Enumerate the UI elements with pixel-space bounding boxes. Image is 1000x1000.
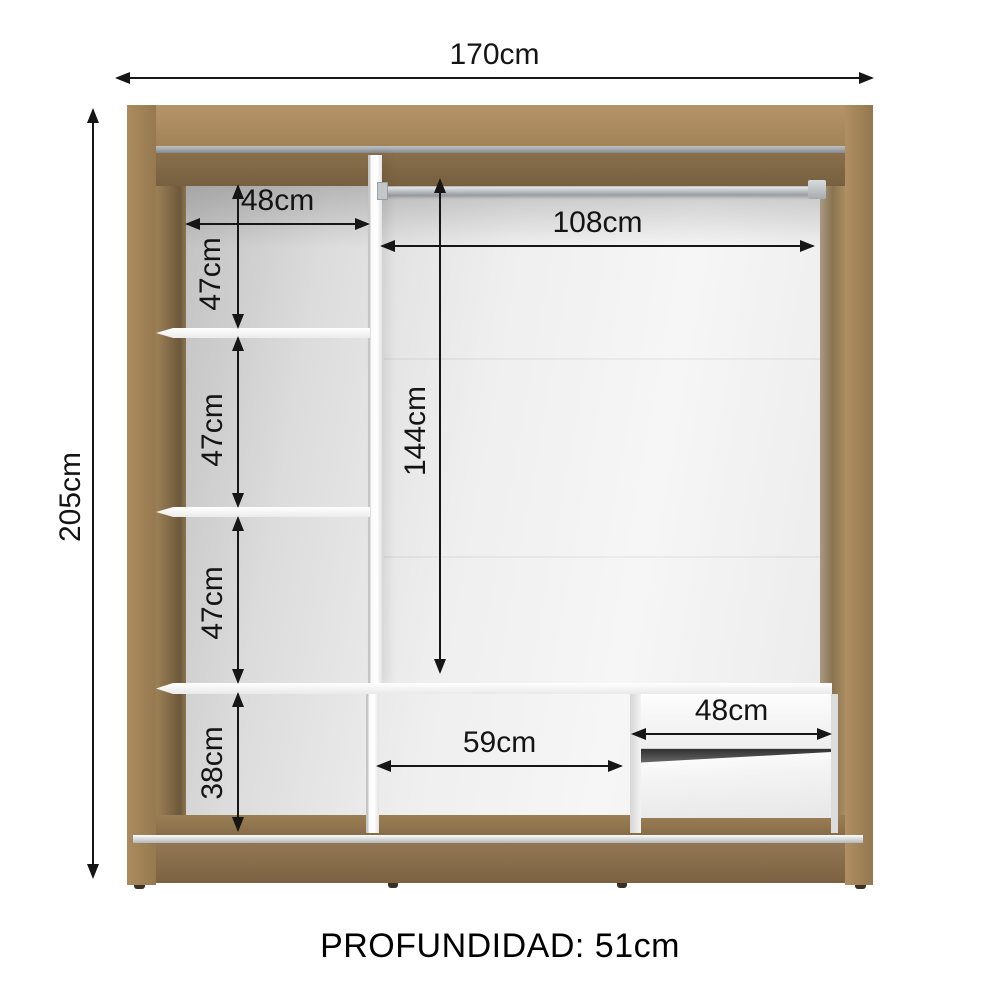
depth-caption: PROFUNDIDAD: 51cm bbox=[0, 927, 1000, 966]
arrowhead-down-icon bbox=[434, 659, 446, 674]
dim-left-section-2: 47cm bbox=[237, 338, 239, 506]
dim-left-column-width: 48cm bbox=[187, 223, 368, 225]
drawer-bottom-front-open bbox=[641, 752, 831, 818]
dim-left-section-1: 47cm bbox=[237, 186, 239, 327]
dim-label-left-section-1: 47cm bbox=[196, 237, 226, 310]
dim-total-height: 205cm bbox=[92, 110, 94, 877]
dim-label-left-column-width: 48cm bbox=[241, 186, 314, 216]
arrowhead-down-icon bbox=[232, 314, 244, 329]
drawer-unit-right-side bbox=[831, 694, 838, 833]
dim-left-section-3: 47cm bbox=[237, 518, 239, 682]
dim-label-bottom-middle-width: 59cm bbox=[463, 728, 536, 758]
base-plinth bbox=[127, 843, 873, 883]
interior-ceiling-panel bbox=[156, 152, 845, 186]
dim-hanging-height: 144cm bbox=[439, 180, 441, 672]
hanging-rod bbox=[382, 187, 814, 195]
arrowhead-right-icon bbox=[817, 728, 832, 740]
shelf bbox=[156, 507, 370, 517]
dim-label-left-section-2: 47cm bbox=[198, 393, 228, 466]
arrowhead-up-icon bbox=[232, 336, 244, 351]
arrowhead-down-icon bbox=[87, 864, 99, 879]
arrowhead-up-icon bbox=[232, 184, 244, 199]
arrowhead-left-icon bbox=[376, 760, 391, 772]
rod-bracket-right bbox=[808, 180, 826, 199]
arrowhead-right-icon bbox=[859, 72, 874, 84]
frame-left-panel bbox=[127, 105, 156, 885]
arrowhead-down-icon bbox=[232, 669, 244, 684]
arrowhead-left-icon bbox=[115, 72, 130, 84]
center-vertical-divider bbox=[368, 155, 382, 686]
arrowhead-up-icon bbox=[87, 108, 99, 123]
arrowhead-up-icon bbox=[232, 516, 244, 531]
arrowhead-down-icon bbox=[232, 493, 244, 508]
dim-bottom-middle-width: 59cm bbox=[378, 765, 621, 767]
wardrobe-dimension-diagram: 170cm 205cm 48cm 47cm 47cm 47cm 38cm 108… bbox=[0, 0, 1000, 1000]
arrowhead-left-icon bbox=[380, 240, 395, 252]
dim-label-rod-span: 108cm bbox=[552, 208, 642, 238]
frame-right-panel bbox=[845, 105, 873, 885]
arrowhead-up-icon bbox=[434, 178, 446, 193]
bottom-sliding-track bbox=[133, 835, 863, 843]
dim-left-bottom-section: 38cm bbox=[237, 694, 239, 830]
back-panel-seam bbox=[384, 358, 820, 360]
top-sliding-track bbox=[156, 146, 845, 153]
arrowhead-up-icon bbox=[232, 692, 244, 707]
dim-label-hanging-height: 144cm bbox=[401, 386, 431, 476]
arrowhead-right-icon bbox=[608, 760, 623, 772]
dim-label-left-bottom-section: 38cm bbox=[198, 726, 228, 799]
dim-label-drawer-width: 48cm bbox=[695, 696, 768, 726]
foot bbox=[617, 883, 627, 888]
rod-bracket-left bbox=[377, 182, 388, 200]
dim-total-width: 170cm bbox=[117, 77, 872, 79]
arrowhead-right-icon bbox=[355, 218, 370, 230]
interior-floor-panel bbox=[156, 815, 845, 836]
arrowhead-left-icon bbox=[185, 218, 200, 230]
frame-top-panel bbox=[127, 105, 873, 146]
dim-label-total-height: 205cm bbox=[56, 452, 86, 542]
back-panel-seam bbox=[384, 556, 820, 558]
dim-drawer-width: 48cm bbox=[633, 733, 830, 735]
long-bottom-shelf bbox=[156, 683, 832, 694]
dim-label-left-section-3: 47cm bbox=[198, 566, 228, 639]
dim-label-total-width: 170cm bbox=[449, 40, 539, 70]
dim-rod-span: 108cm bbox=[382, 245, 813, 247]
arrowhead-down-icon bbox=[232, 817, 244, 832]
shelf bbox=[156, 328, 370, 338]
arrowhead-left-icon bbox=[631, 728, 646, 740]
drawer-unit-left-side bbox=[630, 694, 641, 833]
arrowhead-right-icon bbox=[800, 240, 815, 252]
foot bbox=[388, 883, 398, 888]
